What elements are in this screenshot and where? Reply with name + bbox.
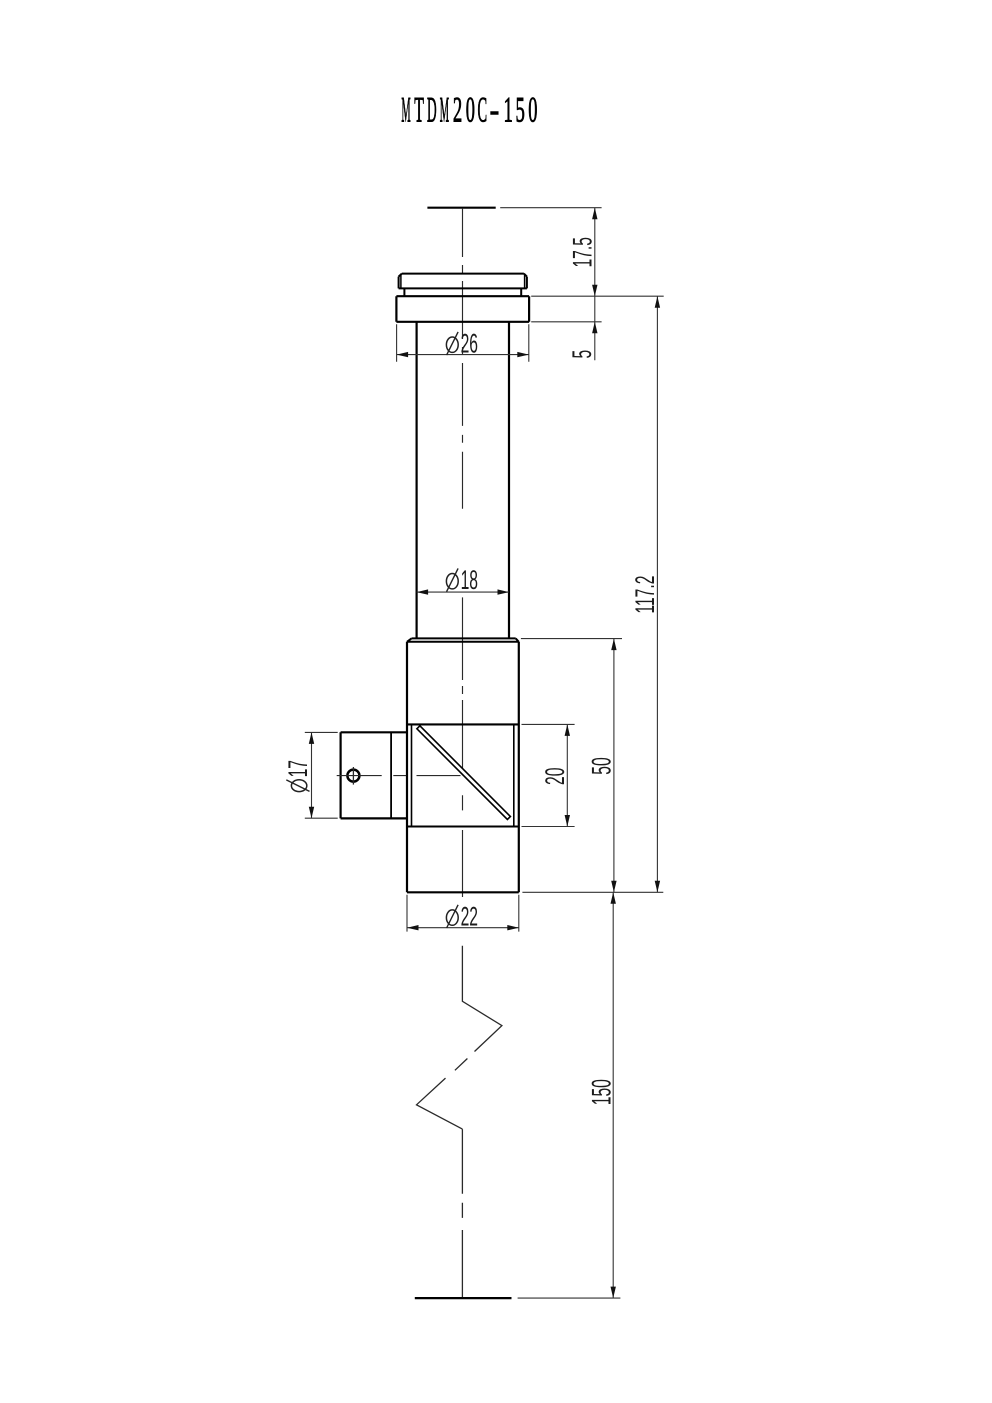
svg-text:M: M: [440, 90, 449, 130]
svg-text:0: 0: [466, 90, 475, 130]
svg-text:-: -: [490, 90, 500, 130]
svg-text:17.5: 17.5: [568, 237, 598, 267]
svg-text:26: 26: [461, 329, 478, 359]
svg-text:D: D: [427, 90, 437, 130]
svg-text:5: 5: [567, 350, 597, 359]
svg-text:20: 20: [540, 768, 570, 785]
svg-text:1: 1: [504, 90, 513, 130]
svg-text:50: 50: [586, 757, 616, 774]
svg-text:M: M: [401, 90, 410, 130]
svg-text:18: 18: [461, 565, 478, 595]
svg-text:22: 22: [461, 901, 478, 931]
svg-text:0: 0: [528, 90, 537, 130]
svg-text:150: 150: [586, 1079, 616, 1105]
svg-text:5: 5: [516, 90, 525, 130]
svg-text:117.2: 117.2: [630, 576, 660, 614]
svg-text:2: 2: [453, 90, 462, 130]
svg-text:17: 17: [283, 760, 313, 777]
svg-text:T: T: [414, 90, 424, 130]
svg-text:C: C: [478, 90, 488, 130]
